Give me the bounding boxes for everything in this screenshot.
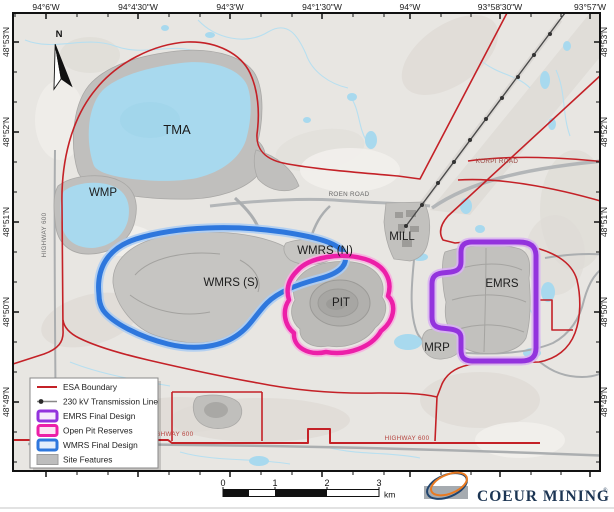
axis-label-left-2: 48°51'N (1, 207, 11, 237)
legend-label: ESA Boundary (63, 382, 118, 392)
wmrs-final-design-swatch (38, 440, 57, 450)
scale-tick-0: 0 (220, 478, 225, 488)
axis-label-right-2: 48°51'N (599, 207, 609, 237)
road-label-roen: ROEN ROAD (329, 191, 370, 198)
area-label-mrp: MRP (424, 342, 450, 354)
site-features-swatch (37, 455, 58, 465)
road-label-highway-left: HIGHWAY 600 (41, 212, 48, 257)
legend-label: 230 kV Transmission Line (63, 397, 158, 407)
area-label-wmrs-n: WMRS (N) (297, 245, 353, 257)
area-label-wmp: WMP (89, 187, 117, 199)
scale-tick-3: 3 (376, 478, 381, 488)
axis-label-right-0: 48°53'N (599, 27, 609, 57)
legend-label: EMRS Final Design (63, 411, 136, 421)
axis-label-top-6: 93°57'W (574, 2, 606, 12)
axis-label-top-2: 94°3'W (216, 2, 243, 12)
emrs-final-design-swatch (38, 411, 57, 421)
map-figure: ROEN ROAD KORPI ROAD HIGHWAY 600 HIGHWAY… (0, 0, 614, 512)
axis-label-left-0: 48°53'N (1, 27, 11, 57)
area-label-mill: MILL (389, 231, 415, 243)
axis-label-top-4: 94°W (400, 2, 421, 12)
scale-tick-2: 2 (324, 478, 329, 488)
axis-label-left-1: 48°52'N (1, 117, 11, 147)
legend-item-wmrs-final-design: WMRS Final Design (38, 440, 138, 450)
legend-label: Open Pit Reserves (63, 426, 133, 436)
axis-label-right-4: 48°49'N (599, 387, 609, 417)
area-label-emrs: EMRS (485, 278, 519, 290)
axis-label-top-1: 94°4'30"W (118, 2, 158, 12)
legend: ESA Boundary 230 kV Transmission Line EM… (30, 378, 161, 471)
legend-item-open-pit-reserves: Open Pit Reserves (38, 426, 133, 436)
logo-registered-mark: ® (603, 487, 608, 494)
axis-label-left-3: 48°50'N (1, 297, 11, 327)
area-label-tma: TMA (163, 122, 191, 137)
legend-item-emrs-final-design: EMRS Final Design (38, 411, 136, 421)
mrp-pond (394, 334, 422, 350)
axis-label-top-3: 94°1'30"W (302, 2, 342, 12)
area-label-pit: PIT (332, 297, 350, 309)
road-label-korpi: KORPI ROAD (476, 158, 519, 165)
north-label: N (56, 29, 63, 40)
site-map-canvas: ROEN ROAD KORPI ROAD HIGHWAY 600 HIGHWAY… (0, 0, 614, 512)
logo-wordmark: COEUR MINING (477, 488, 610, 505)
legend-label: Site Features (63, 455, 112, 465)
axis-label-left-4: 48°49'N (1, 387, 11, 417)
open-pit-reserves-swatch (38, 426, 57, 436)
axis-label-top-5: 93°58'30"W (478, 2, 522, 12)
legend-item-site-features: Site Features (37, 455, 112, 465)
scale-tick-1: 1 (272, 478, 277, 488)
axis-label-right-1: 48°52'N (599, 117, 609, 147)
area-label-wmrs-s: WMRS (S) (204, 277, 259, 289)
scale-unit: km (384, 490, 395, 500)
road-label-highway-bottom-right: HIGHWAY 600 (385, 435, 430, 442)
legend-label: WMRS Final Design (63, 440, 138, 450)
axis-label-right-3: 48°50'N (599, 297, 609, 327)
axis-label-top-0: 94°6'W (32, 2, 59, 12)
